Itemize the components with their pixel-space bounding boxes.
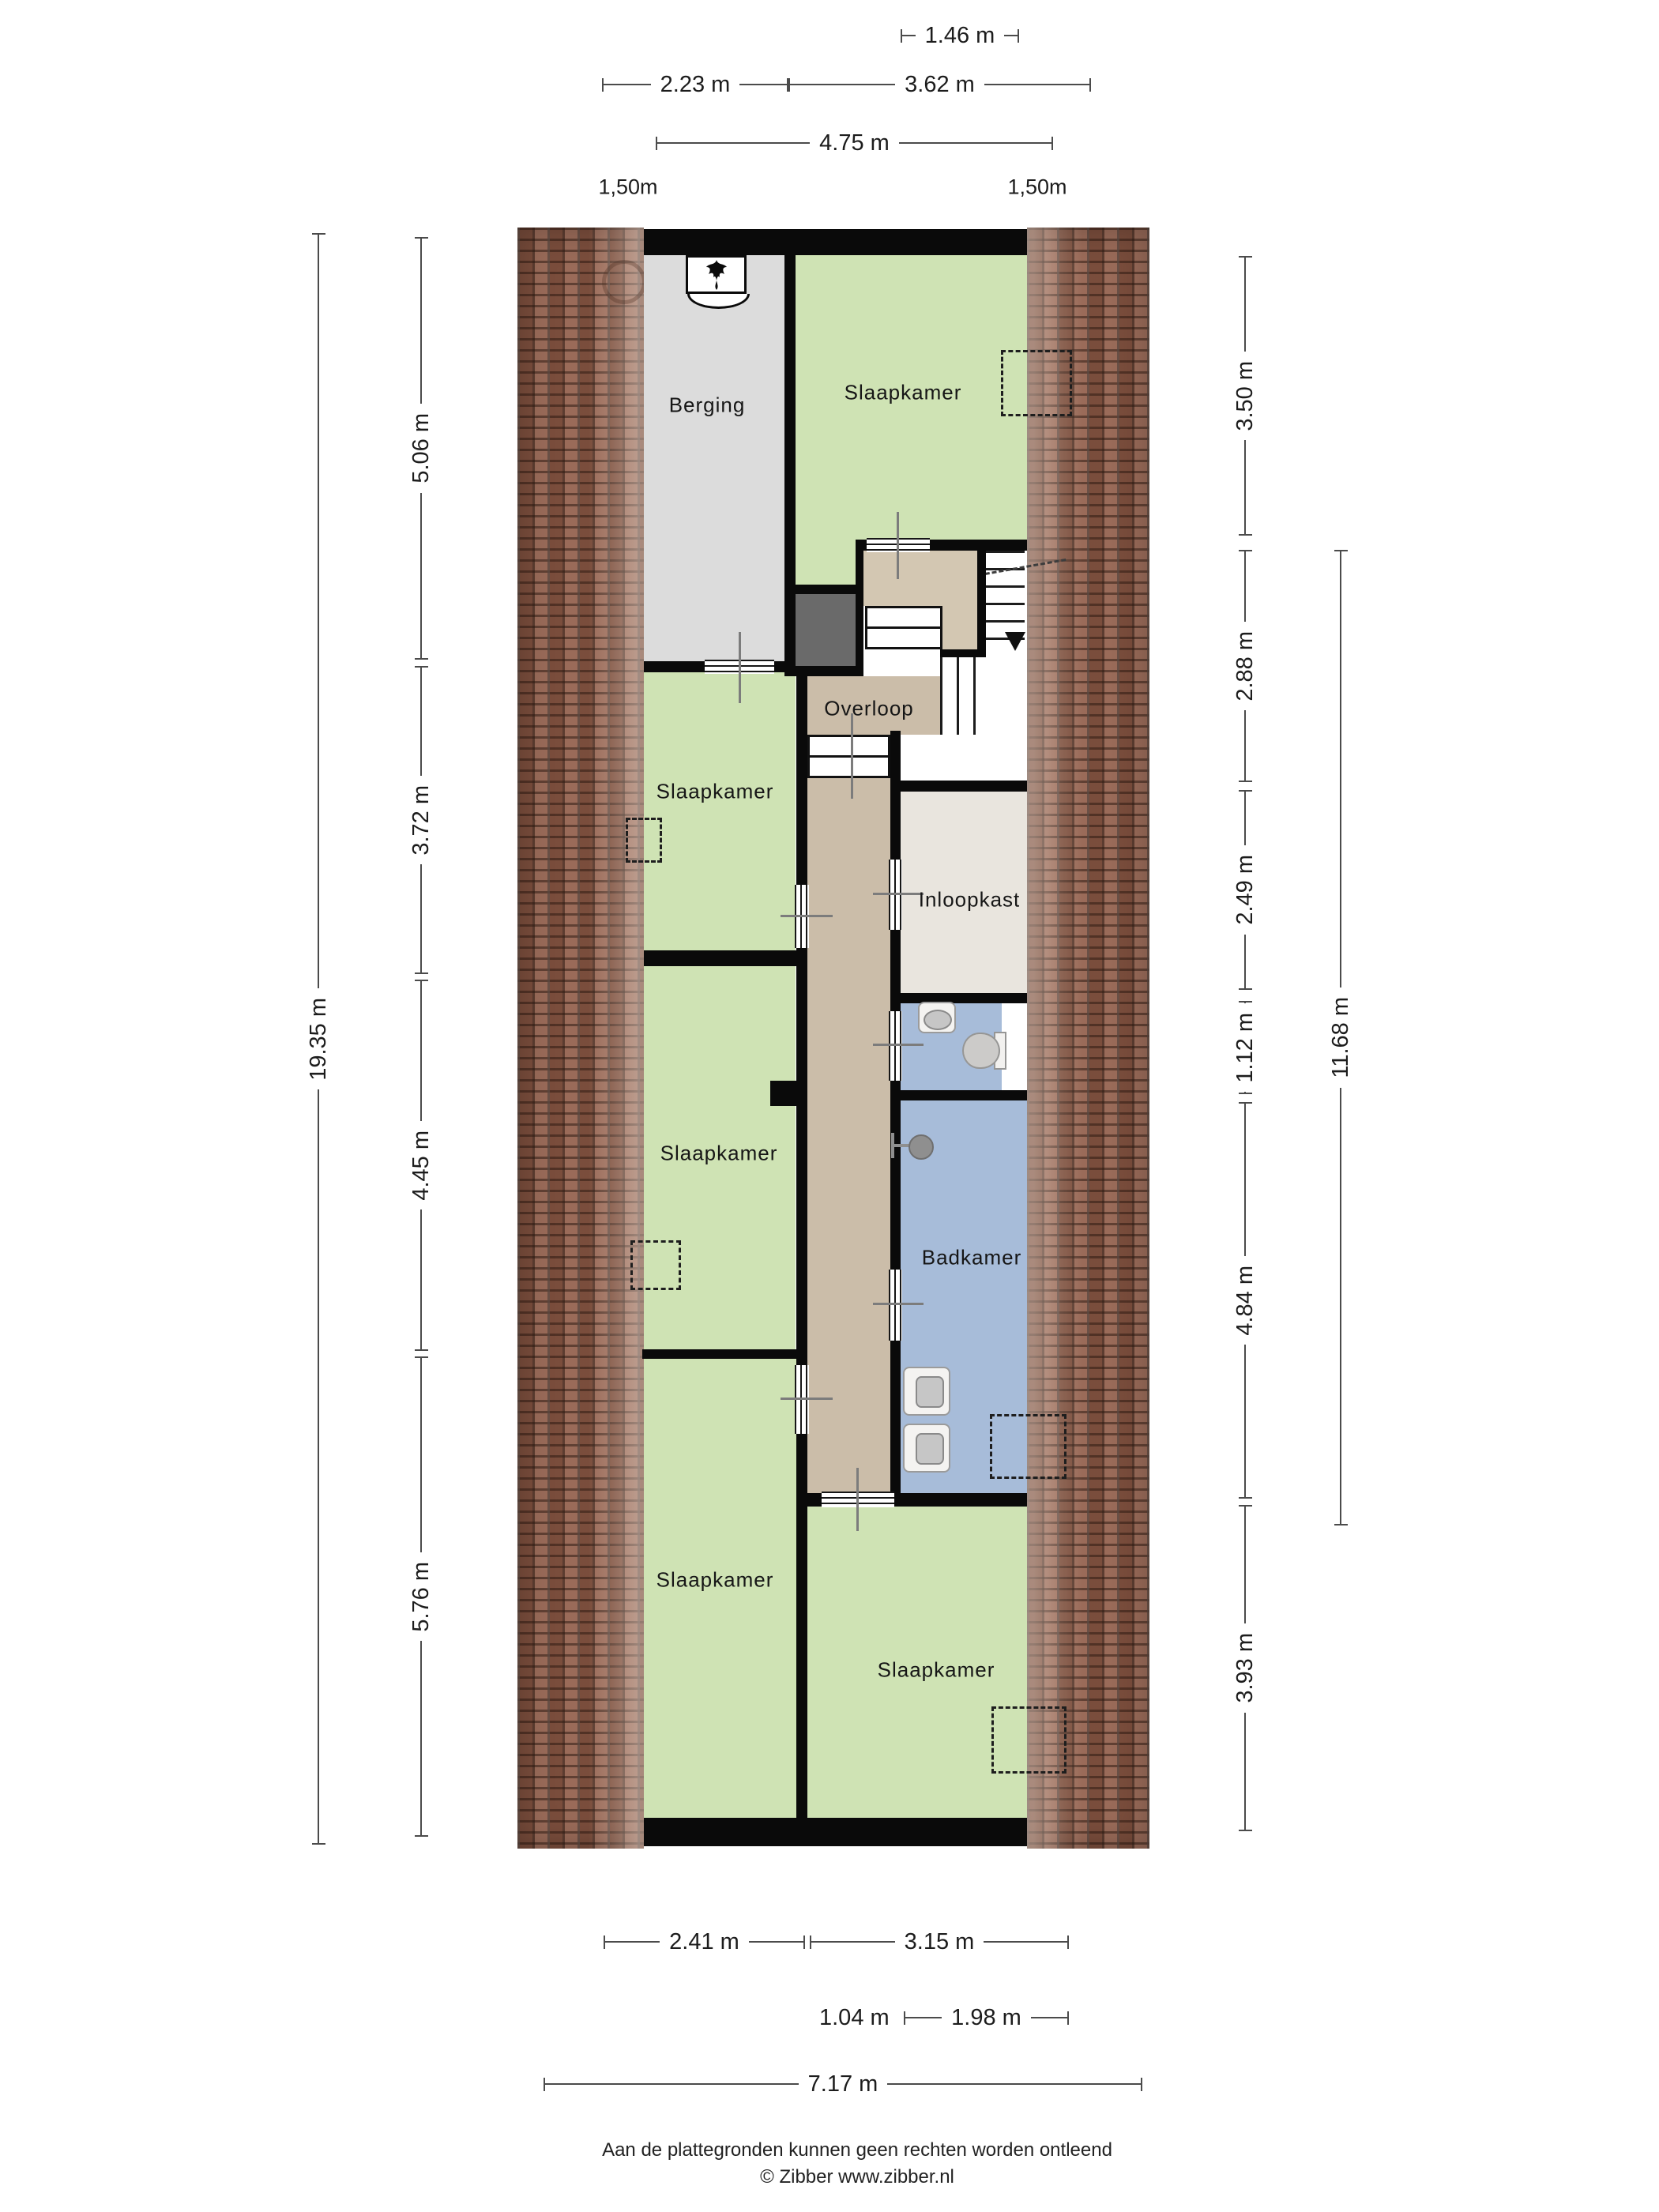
skylight-dashed-outline: [1001, 350, 1072, 416]
skylight-dashed-outline: [626, 818, 662, 863]
stair-base-floor: [893, 735, 1025, 781]
stair-landing-floor: [863, 551, 977, 606]
room-label-slaapkamer-top: Slaapkamer: [845, 381, 962, 405]
dim-label: 3.93 m: [1232, 1623, 1258, 1713]
floorplan-page: Berging Slaapkamer Overloop Slaapkamer I…: [0, 0, 1659, 2212]
room-label-slaapkamer-left-middle: Slaapkamer: [660, 1142, 778, 1166]
room-label-berging: Berging: [669, 393, 746, 418]
roof-width-label-left: 1,50m: [598, 175, 657, 200]
roof-band-right: [1027, 228, 1149, 1849]
roof-width-label-right: 1,50m: [1007, 175, 1066, 200]
roof-band-left: [517, 228, 644, 1849]
room-label-overloop: Overloop: [824, 697, 914, 721]
wall-stub-left-middle: [770, 1081, 796, 1106]
hvac-unit: [686, 255, 747, 294]
door-tick: [856, 1468, 859, 1531]
door-badkamer: [889, 1270, 902, 1341]
dim-bottom-row2-left: 1.04 m: [810, 2004, 897, 2031]
dim-right-seg2: 2.88 m: [1232, 550, 1258, 782]
wall-slaapkamer-left-divider1: [644, 950, 796, 966]
wall-berging-right: [784, 255, 796, 676]
toilet-icon: [962, 1033, 1000, 1069]
skylight-dashed-outline: [991, 1706, 1066, 1774]
wall-toilet-bottom: [890, 1090, 1027, 1100]
dim-label: 5.06 m: [408, 404, 434, 493]
stair-step: [865, 626, 942, 649]
window-tick: [897, 512, 899, 579]
dim-label: 1.12 m: [1232, 1003, 1258, 1093]
dim-label: 3.62 m: [895, 72, 984, 98]
dim-left-seg2: 3.72 m: [408, 666, 434, 974]
dim-label: 2.88 m: [1232, 622, 1258, 711]
dim-label: 2.23 m: [651, 72, 740, 98]
dim-left-outer: 19.35 m: [305, 233, 332, 1845]
wall-bottom: [644, 1818, 1027, 1846]
dim-label: 7.17 m: [799, 2071, 888, 2097]
dim-label: 3.15 m: [895, 1929, 984, 1955]
dim-top-row1: 1.46 m: [901, 22, 1019, 49]
dim-label: 5.76 m: [408, 1552, 434, 1642]
step-tick: [851, 713, 853, 799]
dim-top-row2-left: 2.23 m: [602, 71, 788, 98]
footer-disclaimer: Aan de plattegronden kunnen geen rechten…: [462, 2139, 1252, 2161]
dim-right-seg6: 3.93 m: [1232, 1505, 1258, 1831]
dim-bottom-row2-right: 1.98 m: [904, 2004, 1069, 2031]
room-slaapkamer-top-notch: [796, 540, 856, 585]
dim-left-seg3: 4.45 m: [408, 980, 434, 1351]
door-tick: [873, 1044, 924, 1046]
skylight-dashed-outline: [990, 1414, 1066, 1479]
hvac-unit-icon: [703, 259, 730, 291]
dim-label: 3.72 m: [408, 776, 434, 865]
wall-inloopkast-top: [890, 781, 1027, 792]
washbasin: [903, 1367, 950, 1416]
wall-slaapkamer-left-divider2: [642, 1349, 796, 1359]
dim-right-seg5: 4.84 m: [1232, 1102, 1258, 1499]
room-berging-floor: [644, 255, 784, 661]
wall-void-bottom: [784, 666, 856, 676]
stair-landing-strip: [942, 606, 977, 654]
dim-right-outer: 11.68 m: [1327, 550, 1354, 1525]
dim-label: 1.46 m: [916, 23, 1005, 49]
footer-copyright: © Zibber www.zibber.nl: [462, 2166, 1252, 2188]
dim-top-row2-right: 3.62 m: [788, 71, 1091, 98]
dim-label: 4.84 m: [1232, 1256, 1258, 1345]
room-overloop-corridor: [807, 778, 890, 1493]
dim-label: 1.98 m: [942, 2005, 1031, 2031]
wall-notch-top: [784, 585, 856, 594]
door-toilet: [889, 1011, 902, 1081]
stairs-direction-arrow-icon: [1005, 632, 1025, 651]
door-tick: [873, 1303, 924, 1305]
room-slaapkamer-left-upper-floor: [644, 672, 796, 950]
door-tick: [781, 915, 833, 917]
room-label-inloopkast: Inloopkast: [919, 888, 1021, 912]
dim-bottom-row1-right: 3.15 m: [810, 1928, 1069, 1955]
dim-top-row3: 4.75 m: [656, 130, 1053, 156]
dim-right-seg3: 2.49 m: [1232, 790, 1258, 990]
hall-step: [807, 735, 890, 758]
washbasin-bowl: [916, 1433, 944, 1465]
sink-basin: [924, 1010, 952, 1030]
room-label-slaapkamer-left-upper: Slaapkamer: [656, 780, 774, 804]
wall-corridor-left: [796, 672, 807, 1818]
room-label-badkamer: Badkamer: [922, 1246, 1022, 1270]
stair-step: [865, 606, 942, 629]
dim-left-seg4: 5.76 m: [408, 1356, 434, 1837]
dim-label: 19.35 m: [306, 988, 332, 1090]
dim-label: 2.49 m: [1232, 845, 1258, 935]
sink: [918, 1002, 956, 1033]
hall-step: [807, 755, 890, 778]
wall-stair-stub: [940, 649, 986, 657]
wall-top: [644, 229, 1027, 255]
dim-label: 3.50 m: [1232, 352, 1258, 441]
washbasin: [903, 1424, 950, 1473]
dim-right-seg4: 1.12 m: [1232, 1001, 1258, 1094]
dim-right-seg1: 3.50 m: [1232, 256, 1258, 536]
dim-label: 4.45 m: [408, 1121, 434, 1210]
dim-label: 1.04 m: [810, 2005, 899, 2031]
dim-label: 11.68 m: [1328, 987, 1354, 1088]
skylight-dashed-outline: [630, 1240, 681, 1290]
wall-corridor-right: [890, 731, 901, 1493]
wall-stair-divider: [977, 540, 986, 654]
shower-bracket: [891, 1133, 894, 1158]
shaft-void: [796, 594, 856, 666]
door-tick: [873, 893, 924, 895]
wall-inloopkast-bottom: [890, 993, 1027, 1003]
dim-bottom-row3: 7.17 m: [544, 2071, 1142, 2097]
washbasin-bowl: [916, 1376, 944, 1408]
room-label-slaapkamer-left-lower: Slaapkamer: [656, 1568, 774, 1593]
dim-label: 4.75 m: [810, 130, 899, 156]
door-tick: [781, 1398, 833, 1400]
wall-void-right: [856, 540, 863, 676]
rotation-mark-icon: [602, 260, 646, 304]
window-tick: [739, 632, 741, 703]
dim-label: 2.41 m: [660, 1929, 749, 1955]
dim-bottom-row1-left: 2.41 m: [604, 1928, 805, 1955]
stairs-lower-flight: [940, 657, 987, 735]
shower-icon: [908, 1134, 934, 1160]
dim-left-seg1: 5.06 m: [408, 237, 434, 660]
room-label-slaapkamer-bottom-right: Slaapkamer: [878, 1658, 995, 1683]
